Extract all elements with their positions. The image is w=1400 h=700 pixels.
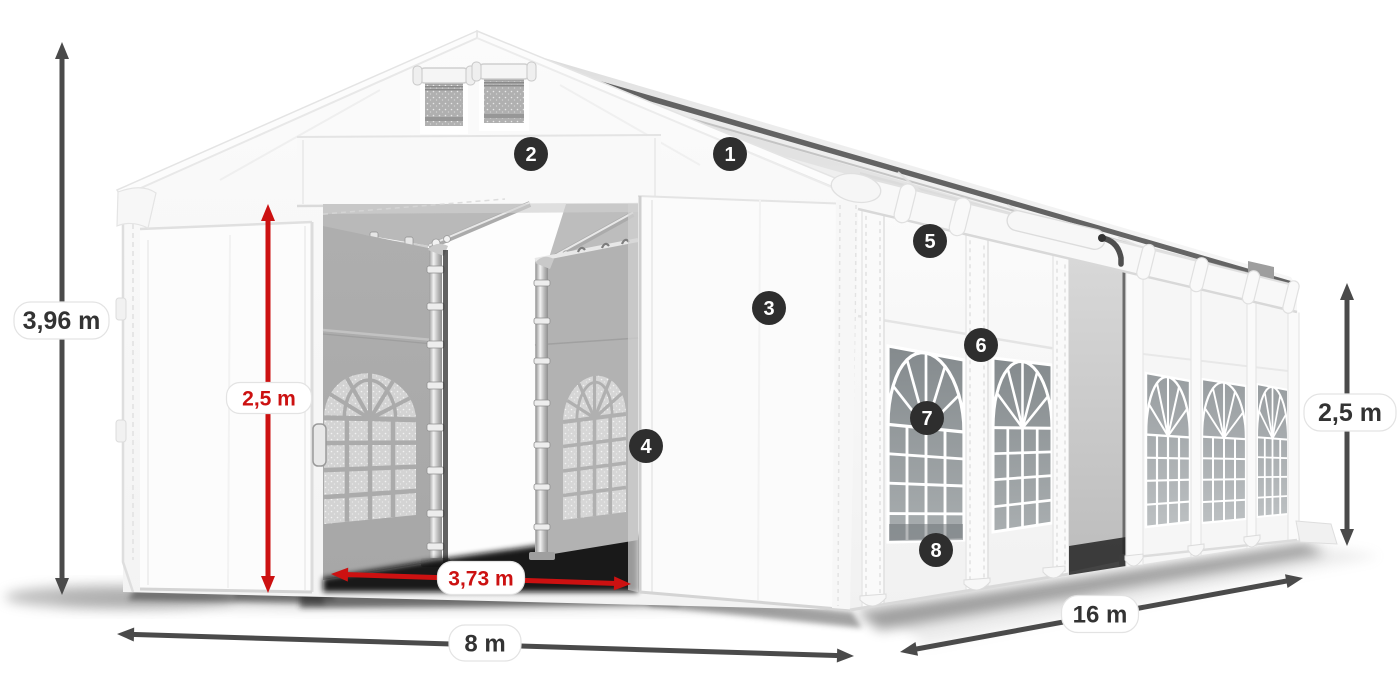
svg-text:3,96 m: 3,96 m [23, 307, 101, 335]
svg-text:2,5 m: 2,5 m [1318, 399, 1382, 427]
svg-text:6: 6 [975, 335, 986, 357]
svg-text:4: 4 [640, 436, 652, 458]
svg-text:8 m: 8 m [464, 630, 505, 657]
svg-text:5: 5 [924, 231, 935, 253]
svg-text:16 m: 16 m [1073, 601, 1128, 628]
svg-text:2,5 m: 2,5 m [242, 387, 296, 410]
svg-text:7: 7 [921, 408, 932, 430]
svg-text:2: 2 [525, 144, 536, 166]
svg-text:1: 1 [724, 144, 735, 166]
svg-text:3: 3 [763, 298, 774, 320]
svg-text:8: 8 [930, 540, 941, 562]
svg-text:3,73 m: 3,73 m [448, 567, 513, 590]
